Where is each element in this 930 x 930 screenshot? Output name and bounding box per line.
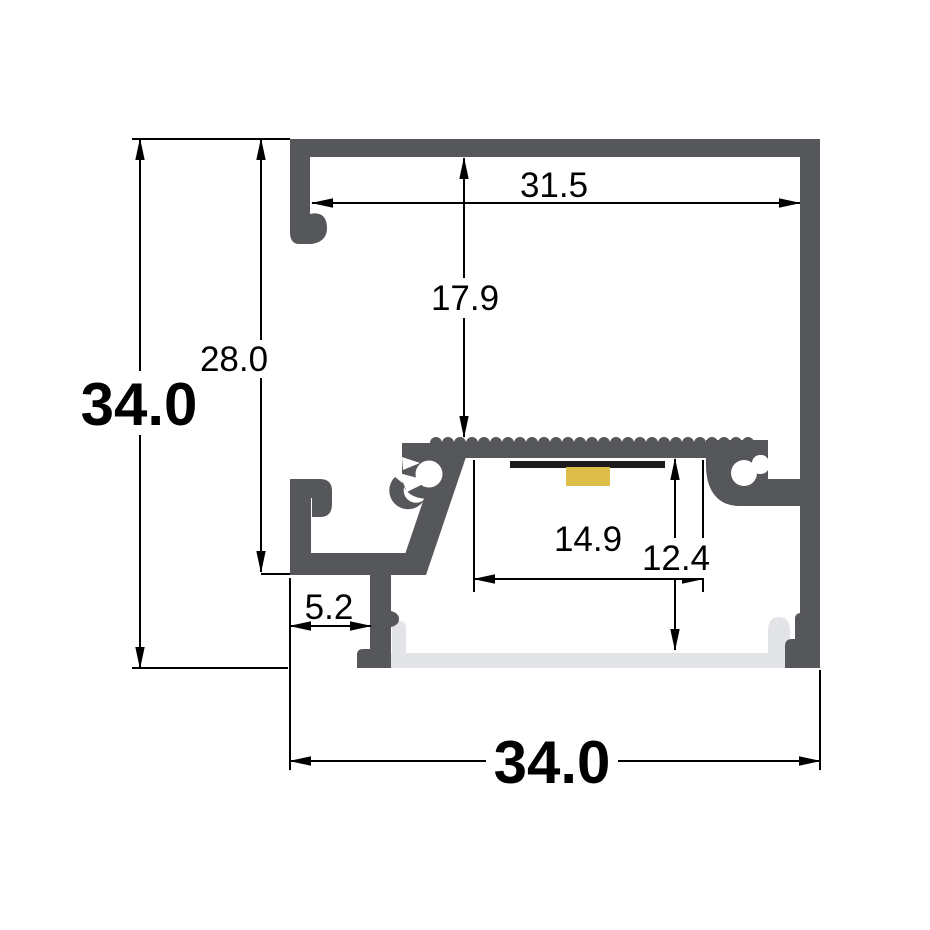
- right-clip-opening: [752, 455, 769, 474]
- profile-body-group: [290, 139, 820, 668]
- dim-label-overall-width: 34.0: [494, 729, 611, 796]
- dim-label-platform-depth: 17.9: [431, 279, 499, 318]
- diffuser-plate: [391, 653, 791, 668]
- dim-label-cavity-depth: 12.4: [642, 539, 710, 578]
- diffuser-group: [391, 617, 791, 668]
- profile-right-foot: [785, 613, 820, 668]
- left-foot: [357, 649, 391, 668]
- dim-label-mount-depth: 28.0: [200, 340, 268, 379]
- dim-label-foot-offset: 5.2: [305, 588, 354, 627]
- profile-right-wall: [800, 139, 820, 668]
- dim-label-led-slot-width: 14.9: [554, 520, 622, 559]
- mount-rail-bottom: [290, 553, 416, 575]
- profile-cross-section-drawing: 34.0 28.0 31.5 17.9 14.9 12.4 5.2 34.0: [0, 0, 930, 930]
- bottom-stem: [370, 575, 391, 652]
- profile-top-bar: [290, 139, 820, 157]
- led-pcb-strip: [510, 461, 665, 468]
- dim-label-inner-top-width: 31.5: [520, 166, 588, 205]
- technical-drawing-canvas: 34.0 28.0 31.5 17.9 14.9 12.4 5.2 34.0: [0, 0, 930, 930]
- dim-label-overall-height: 34.0: [81, 371, 198, 438]
- led-chip: [566, 467, 610, 486]
